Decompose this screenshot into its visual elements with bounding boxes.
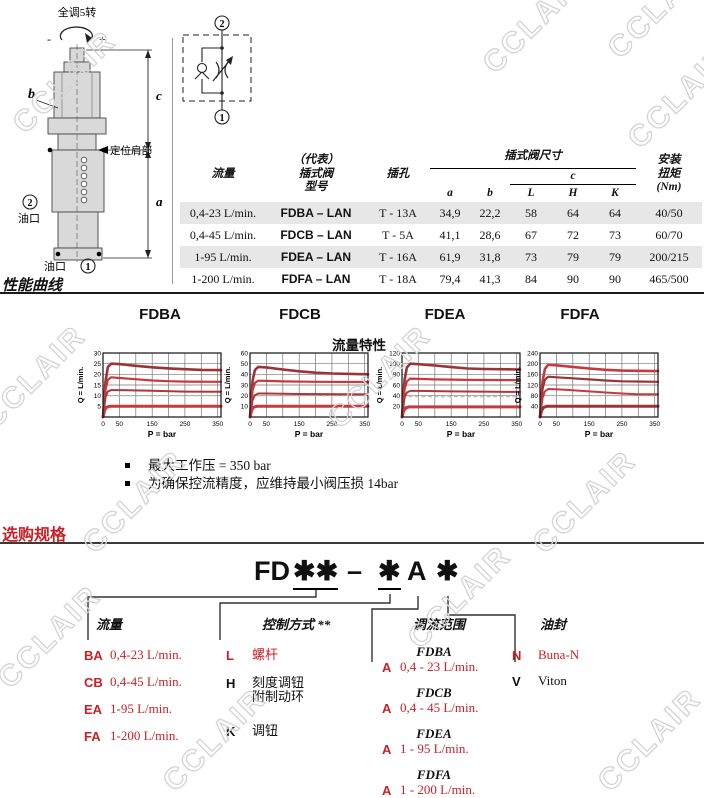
flow-option: FA1-200 L/min.: [84, 729, 214, 744]
col-label-control: 控制方式 **: [262, 614, 330, 633]
flow-option: BA0,4-23 L/min.: [84, 648, 214, 663]
col-label-flow: 流量: [96, 614, 122, 633]
flow-option: EA1-95 L/min.: [84, 702, 214, 717]
option-desc: Buna-N: [538, 648, 579, 662]
option-desc: 1-95 L/min.: [110, 702, 172, 716]
flow-option: CB0,4-45 L/min.: [84, 675, 214, 690]
range-option: FDBAA0,4 - 23 L/min.: [372, 644, 492, 675]
option-code: A: [382, 742, 400, 757]
option-code: A: [382, 783, 400, 798]
option-code: EA: [84, 702, 110, 717]
option-desc: 1 - 95 L/min.: [400, 742, 469, 756]
option-desc: 调钮: [252, 724, 278, 738]
range-option: FDEAA1 - 95 L/min.: [372, 726, 492, 757]
option-code: A: [382, 660, 400, 675]
option-desc: 1-200 L/min.: [110, 729, 179, 743]
option-desc: 1 - 200 L/min.: [400, 783, 475, 797]
control-options-list: L螺杆H刻度调钮 附制动环K调钮: [226, 648, 356, 739]
option-code: H: [226, 676, 252, 691]
option-desc: 刻度调钮 附制动环: [252, 676, 304, 705]
option-desc: 0,4 - 45 L/min.: [400, 701, 478, 715]
option-code: CB: [84, 675, 110, 690]
col-label-seal: 油封: [540, 614, 566, 633]
code-connector-lines: [0, 0, 704, 700]
control-option: L螺杆: [226, 648, 356, 663]
flow-options-list: BA0,4-23 L/min.CB0,4-45 L/min.EA1-95 L/m…: [84, 648, 214, 756]
range-model: FDBA: [384, 644, 484, 660]
option-desc: Viton: [538, 674, 567, 688]
range-option: FDCBA0,4 - 45 L/min.: [372, 685, 492, 716]
option-code: A: [382, 701, 400, 716]
option-code: V: [512, 674, 538, 689]
datasheet-page: 全调5转 - +: [0, 0, 704, 798]
seal-option: VViton: [512, 674, 622, 689]
control-option: K调钮: [226, 724, 356, 739]
range-options-list: FDBAA0,4 - 23 L/min.FDCBA0,4 - 45 L/min.…: [372, 644, 492, 798]
option-desc: 0,4 - 23 L/min.: [400, 660, 478, 674]
seal-option: NBuna-N: [512, 648, 622, 663]
option-code: L: [226, 648, 252, 663]
option-desc: 0,4-45 L/min.: [110, 675, 182, 689]
control-option: H刻度调钮 附制动环: [226, 676, 356, 705]
range-model: FDFA: [384, 767, 484, 783]
option-desc: 0,4-23 L/min.: [110, 648, 182, 662]
range-option: FDFAA1 - 200 L/min.: [372, 767, 492, 798]
option-code: N: [512, 648, 538, 663]
option-code: FA: [84, 729, 110, 744]
seal-options-list: NBuna-NVViton: [512, 648, 622, 700]
range-model: FDEA: [384, 726, 484, 742]
col-label-range: 调流范围: [413, 614, 465, 633]
option-code: BA: [84, 648, 110, 663]
option-desc: 螺杆: [252, 648, 278, 662]
range-model: FDCB: [384, 685, 484, 701]
option-code: K: [226, 724, 252, 739]
